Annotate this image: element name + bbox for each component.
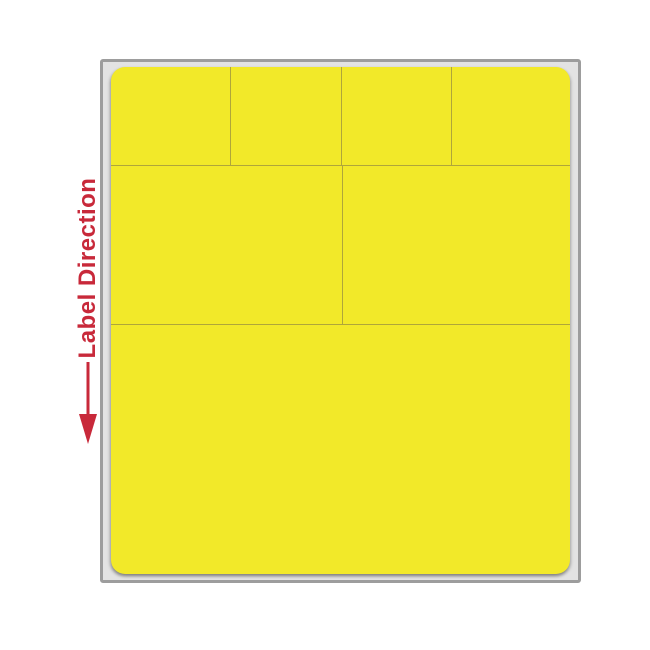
label-roll-diagram: Label Direction	[0, 0, 650, 650]
row-top	[111, 67, 570, 166]
row-middle	[111, 166, 570, 325]
label-cell	[111, 67, 231, 165]
label-cell	[111, 166, 343, 324]
label-direction-text: Label Direction	[74, 178, 102, 359]
label-cell	[452, 67, 570, 165]
arrow-head	[79, 414, 97, 444]
label-cell	[111, 325, 570, 574]
label-cell	[343, 166, 570, 324]
label-cell	[231, 67, 341, 165]
row-bottom	[111, 325, 570, 574]
down-arrow-icon	[78, 362, 98, 444]
arrow-stem	[87, 362, 90, 416]
label-sheet	[111, 67, 570, 574]
label-cell	[342, 67, 452, 165]
